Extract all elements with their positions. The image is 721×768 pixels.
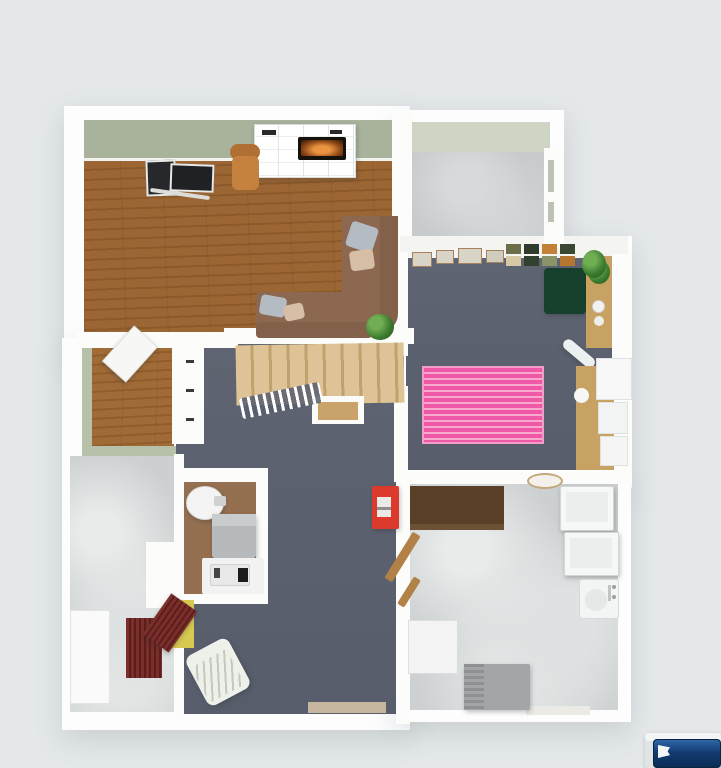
desk-cup bbox=[594, 316, 604, 326]
storage-window-trim bbox=[548, 202, 554, 222]
furnace-box-top bbox=[212, 514, 256, 526]
workbench-white-box bbox=[598, 402, 628, 434]
gallery-frame bbox=[542, 256, 557, 266]
gallery-frame bbox=[436, 250, 454, 264]
black-bench-long bbox=[170, 163, 215, 193]
stairs-under-floor bbox=[318, 402, 358, 420]
gallery-frame bbox=[458, 248, 482, 264]
gallery-frame bbox=[412, 252, 432, 267]
wall-bedroom-laundry-divider bbox=[400, 470, 632, 484]
gallery-frame bbox=[486, 250, 504, 263]
console-decor bbox=[262, 130, 276, 135]
sink-knob bbox=[612, 595, 616, 599]
sofa-back-cushion-bottom bbox=[256, 322, 372, 338]
gray-appliance-ribs bbox=[464, 664, 484, 710]
accent-chair-seat bbox=[232, 156, 259, 190]
green-ottoman-cube bbox=[544, 268, 586, 314]
gallery-frame bbox=[560, 244, 575, 254]
hall-door-threshold bbox=[308, 702, 386, 713]
wall-craft-top bbox=[178, 468, 268, 482]
laundry-counter bbox=[410, 486, 504, 528]
tv-screen bbox=[301, 140, 343, 156]
sofa-pillow-tan bbox=[349, 248, 376, 271]
dryer-lid bbox=[570, 538, 612, 568]
gallery-frame bbox=[524, 256, 539, 266]
storage-room-wall-face bbox=[410, 122, 550, 152]
pink-striped-rug bbox=[422, 366, 544, 444]
gallery-frame bbox=[560, 256, 575, 266]
entry-room-wall-left bbox=[82, 348, 92, 456]
laundry-counter-edge bbox=[410, 524, 504, 530]
sewing-machine-detail bbox=[214, 568, 220, 578]
workbench-white-box bbox=[600, 436, 628, 466]
water-heater-cap bbox=[214, 496, 226, 506]
gallery-frame bbox=[524, 244, 539, 254]
gallery-frame bbox=[506, 244, 521, 254]
desk-cup bbox=[592, 300, 605, 313]
gallery-frame bbox=[542, 244, 557, 254]
ceiling-light bbox=[527, 473, 563, 489]
floor-plant bbox=[366, 314, 394, 340]
workbench-paper-roll bbox=[574, 388, 589, 403]
entry-room-wall-bottom bbox=[82, 446, 176, 456]
wall-storage-right-jut bbox=[544, 148, 564, 248]
console-decor bbox=[330, 130, 342, 134]
closet-handle bbox=[186, 389, 194, 392]
utility-sink-basin bbox=[585, 589, 607, 611]
storage-window-trim bbox=[548, 160, 554, 192]
closet-handle bbox=[186, 360, 194, 363]
sink-faucet bbox=[608, 585, 611, 601]
closet-handle bbox=[186, 418, 194, 421]
sewing-machine-arm bbox=[238, 568, 248, 582]
hall-closet-front bbox=[172, 342, 204, 444]
floorplan-3d-render bbox=[0, 0, 721, 768]
washer-lid bbox=[566, 492, 608, 522]
workbench-white-box bbox=[596, 358, 632, 400]
laundry-door-threshold bbox=[526, 706, 590, 715]
sink-knob bbox=[612, 585, 616, 589]
red-cabinet-bar bbox=[377, 507, 391, 510]
floorplan-screenshot: { "meta": {"description": "3D rendered f… bbox=[0, 0, 721, 768]
gallery-plant bbox=[582, 250, 606, 278]
laundry-white-table bbox=[408, 620, 458, 674]
gallery-frame bbox=[506, 256, 521, 266]
storage-room-floor bbox=[410, 152, 548, 244]
utility-white-cabinet bbox=[70, 610, 110, 704]
